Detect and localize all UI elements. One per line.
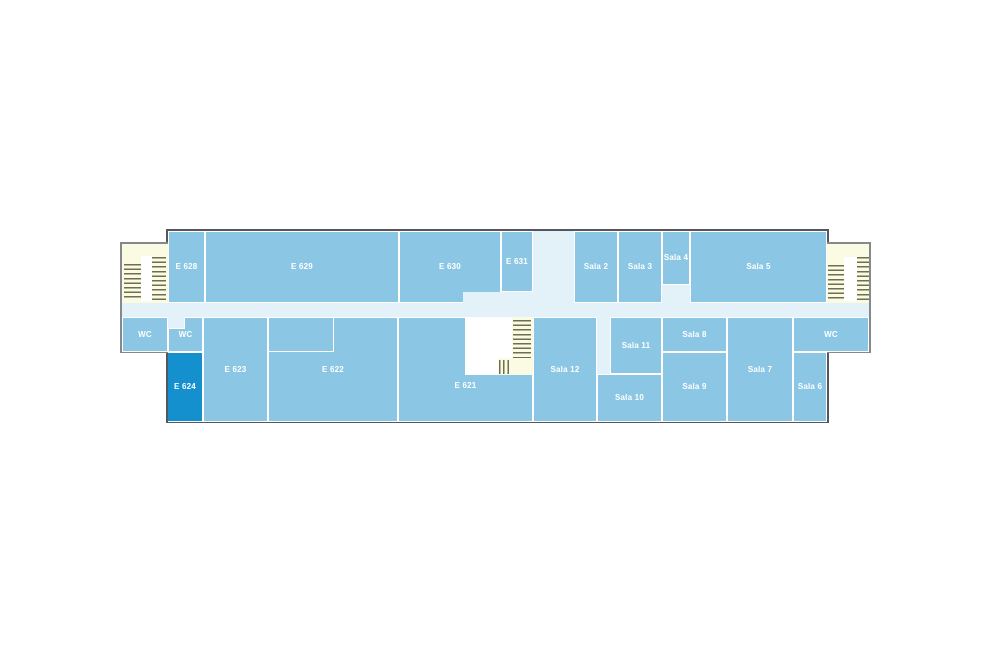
room-sala-7-label: Sala 7	[748, 366, 772, 374]
room-sala-12[interactable]: Sala 12	[533, 317, 597, 422]
room-sala-5[interactable]: Sala 5	[690, 231, 827, 303]
stairs-left-landing	[141, 256, 152, 301]
room-e621-label: E 621	[399, 382, 532, 390]
room-e622-label: E 622	[322, 366, 344, 374]
corridor-notch-sala-4	[663, 285, 689, 303]
stairs-right-flight-b	[857, 257, 869, 301]
corridor-stub-wc	[168, 317, 185, 329]
corridor-vertical-top	[533, 231, 574, 303]
room-e624-highlighted-label: E 624	[174, 383, 196, 391]
room-e628[interactable]: E 628	[168, 231, 205, 303]
room-sala-8-label: Sala 8	[682, 331, 706, 339]
stairs-left-flight-a	[124, 264, 141, 301]
room-sala-12-label: Sala 12	[551, 366, 580, 374]
room-sala-3[interactable]: Sala 3	[618, 231, 662, 303]
room-wc-right[interactable]: WC	[793, 317, 869, 352]
room-sala-9[interactable]: Sala 9	[662, 352, 727, 422]
stairs-right-landing	[844, 257, 857, 301]
room-sala-10[interactable]: Sala 10	[597, 374, 662, 422]
room-sala-8[interactable]: Sala 8	[662, 317, 727, 352]
room-sala-3-label: Sala 3	[628, 263, 652, 271]
stairs-center-flight-v	[499, 360, 511, 374]
room-e630-label: E 630	[439, 263, 461, 271]
room-sala-10-label: Sala 10	[615, 394, 644, 402]
corridor-notch-e630	[463, 292, 533, 303]
corridor-main	[122, 303, 869, 317]
stairs-left-flight-b	[152, 257, 166, 301]
room-sala-11-label: Sala 11	[622, 342, 651, 350]
room-wc-left-annex-label: WC	[138, 331, 152, 339]
room-e629[interactable]: E 629	[205, 231, 399, 303]
room-e631-label: E 631	[506, 258, 528, 266]
room-e624-highlighted[interactable]: E 624	[168, 352, 203, 422]
room-sala-9-label: Sala 9	[682, 383, 706, 391]
room-e622-subroom	[268, 317, 334, 352]
room-sala-4[interactable]: Sala 4	[662, 231, 690, 285]
room-sala-4-label: Sala 4	[664, 254, 688, 262]
room-wc-left-label: WC	[179, 331, 193, 339]
room-wc-left-annex[interactable]: WC	[122, 317, 168, 352]
room-wc-right-label: WC	[824, 331, 838, 339]
corridor-strip-sala-11	[597, 317, 610, 374]
floorplan-canvas: E 628E 629E 630E 631Sala 2Sala 3Sala 4Sa…	[0, 0, 995, 654]
stairs-right-flight-a	[828, 265, 844, 301]
room-sala-2[interactable]: Sala 2	[574, 231, 618, 303]
room-e623-label: E 623	[225, 366, 247, 374]
room-sala-6[interactable]: Sala 6	[793, 352, 827, 422]
room-e628-label: E 628	[176, 263, 198, 271]
room-sala-5-label: Sala 5	[746, 263, 770, 271]
room-sala-7[interactable]: Sala 7	[727, 317, 793, 422]
room-sala-2-label: Sala 2	[584, 263, 608, 271]
room-e631[interactable]: E 631	[501, 231, 533, 292]
room-e623[interactable]: E 623	[203, 317, 268, 422]
room-sala-11[interactable]: Sala 11	[610, 317, 662, 374]
stairs-center-flight-h	[513, 320, 531, 358]
room-e629-label: E 629	[291, 263, 313, 271]
room-sala-6-label: Sala 6	[798, 383, 822, 391]
